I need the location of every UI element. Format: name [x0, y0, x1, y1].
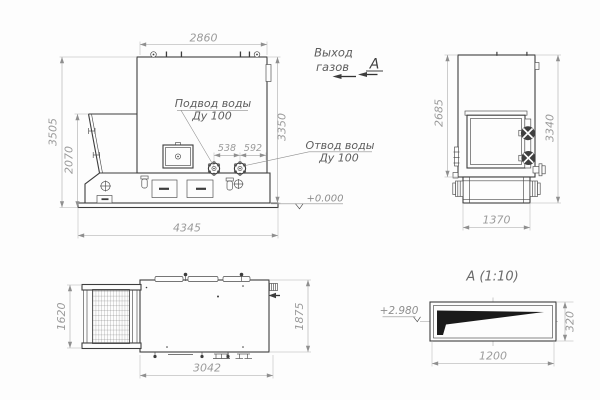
- fuel-hopper: [89, 114, 138, 173]
- drain-valve: [226, 178, 233, 190]
- flow-arrow-icon: [269, 293, 277, 298]
- bottom-fittings: [153, 352, 252, 359]
- foundation-rail: [78, 203, 278, 208]
- dim-section-width: 1200: [479, 350, 507, 363]
- dim-hopper-height: 2070: [63, 146, 76, 174]
- top-body: [140, 280, 269, 352]
- level-check-icon: [414, 317, 421, 322]
- water-inlet-flange: [208, 161, 220, 175]
- side-door: [465, 111, 527, 168]
- dim-front-height-right: 3350: [276, 113, 289, 141]
- gas-outlet-label-line1: Выход: [314, 46, 353, 60]
- dim-top-hopper-width: 1620: [55, 303, 68, 331]
- water-inlet-label-line1: Подвод воды: [175, 97, 252, 110]
- drain-valve: [141, 176, 148, 188]
- zero-level-mark: +0.000: [271, 194, 344, 209]
- gas-duct-connector: [269, 284, 281, 299]
- dim-front-width: 2860: [190, 32, 218, 45]
- level-check-icon: [296, 204, 304, 209]
- dim-nozzle-span-right: 592: [244, 143, 262, 154]
- dim-base-width: 4345: [173, 222, 201, 235]
- gas-outlet-annotation: Выход газов А: [314, 46, 383, 80]
- side-top-bracket: [535, 63, 539, 70]
- section-level-text: +2.980: [380, 305, 419, 317]
- section-view-a: А (1:10) +2.980 320 1200: [380, 270, 577, 367]
- side-view: 2685 3340 1370: [433, 52, 562, 231]
- valve-handwheel-icon: [521, 151, 535, 165]
- base-flange-right: [530, 181, 540, 197]
- zero-level-text: +0.000: [306, 194, 343, 205]
- section-level-mark: +2.980: [380, 305, 421, 322]
- dim-top-body-width: 1875: [293, 303, 306, 331]
- boiler-technical-drawing: 2860 3505 2070 3350 4345 538 592: [0, 0, 600, 400]
- section-cut-marker: А: [358, 57, 383, 78]
- section-view-title: А (1:10): [465, 270, 518, 285]
- top-pads: [155, 273, 250, 282]
- valve-handwheel-icon: [521, 126, 535, 140]
- gas-outlet-label-line2: газов: [316, 60, 349, 74]
- dim-front-height-overall: 3505: [47, 118, 60, 146]
- top-view: 1620 1875 3042: [55, 273, 311, 379]
- water-outlet-flange: [234, 161, 246, 175]
- door-hinge: [454, 147, 460, 166]
- dim-side-overall-height: 3340: [544, 114, 557, 142]
- dim-side-base-width: 1370: [483, 214, 511, 227]
- water-outlet-label-line2: Ду 100: [318, 152, 359, 165]
- side-base: [453, 177, 540, 203]
- section-letter: А: [369, 57, 380, 73]
- lifting-eyebolt-icon: [254, 52, 260, 58]
- lifting-eyebolt-icon: [151, 52, 157, 58]
- mesh-grid: [93, 290, 130, 344]
- hopper-grate: [82, 285, 141, 349]
- dim-top-body-length: 3042: [193, 362, 221, 375]
- water-inlet-label-line2: Ду 100: [191, 110, 232, 123]
- dim-side-body-height: 2685: [433, 99, 446, 127]
- side-bracket: [266, 65, 271, 82]
- dim-nozzle-span-left: 538: [218, 143, 236, 154]
- drawing-sheet: 2860 3505 2070 3350 4345 538 592: [0, 0, 600, 400]
- gas-flow-arrow-icon: [333, 74, 357, 79]
- dim-section-height: 320: [564, 311, 577, 332]
- support-stand-icon: [236, 354, 253, 359]
- water-outlet-label-line1: Отвод воды: [306, 139, 375, 152]
- base-frame: [78, 173, 278, 208]
- base-flange-left: [453, 181, 463, 197]
- inspection-door: [163, 143, 193, 168]
